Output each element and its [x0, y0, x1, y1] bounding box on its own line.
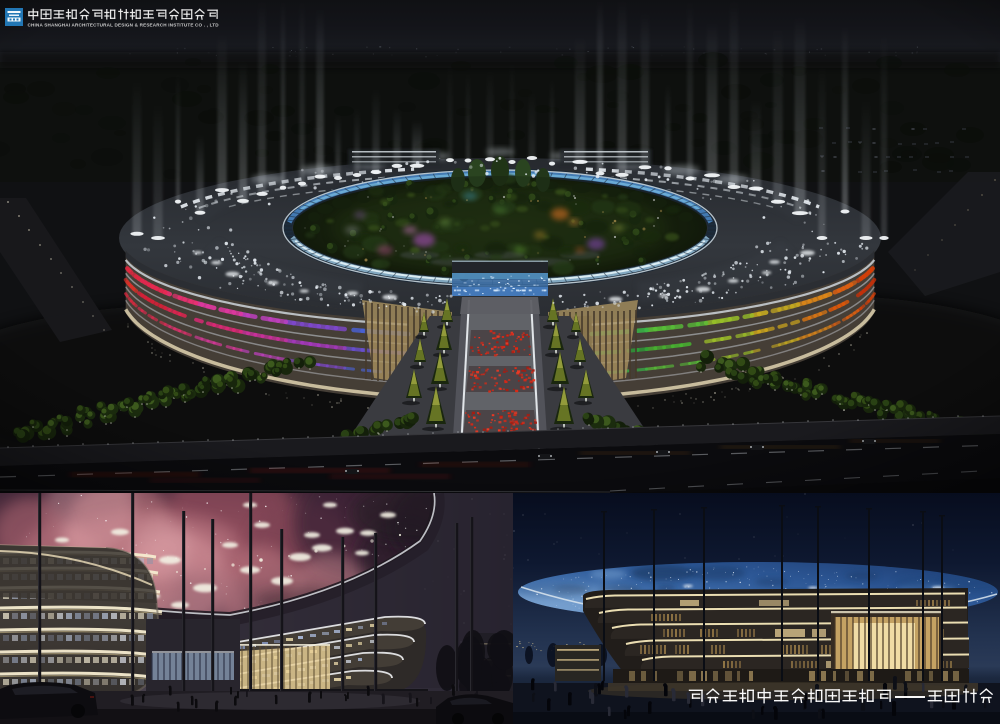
- svg-text:CHINA SHANGHAI ARCHITECTURAL D: CHINA SHANGHAI ARCHITECTURAL DESIGN & RE…: [28, 23, 220, 28]
